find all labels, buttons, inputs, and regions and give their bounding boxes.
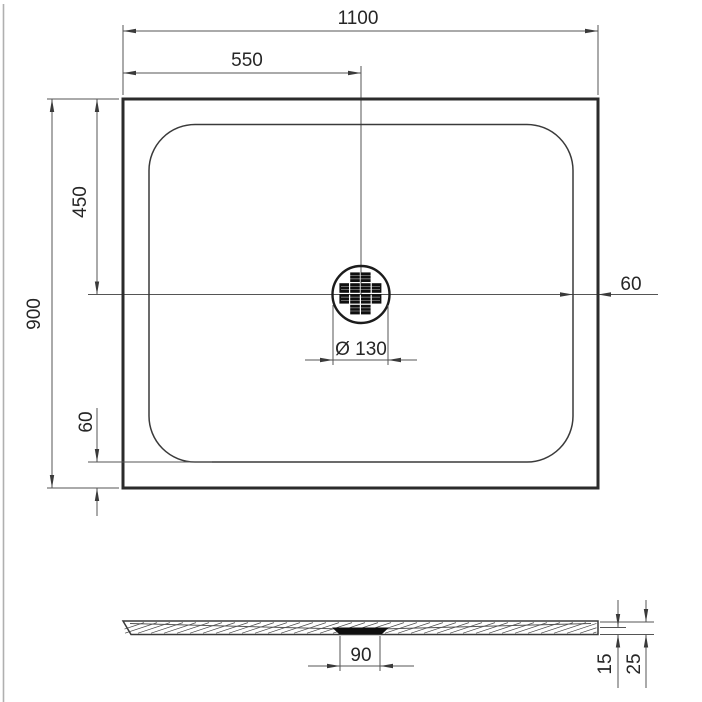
hatch-line: [190, 623, 222, 634]
arrow-left-icon: [123, 71, 136, 75]
dim-drain-width: 90: [308, 636, 414, 671]
basin-surface-line-left: [130, 624, 343, 630]
technical-drawing: 1100 550 900 450 60: [0, 0, 702, 702]
dim-half-depth: 450: [70, 99, 99, 295]
dim-overall-depth: 900: [24, 99, 119, 488]
dim-label-half-depth: 450: [70, 186, 91, 218]
arrow-right-icon: [585, 29, 598, 33]
arrow-left-icon: [123, 29, 136, 33]
arrow-up-icon: [616, 635, 620, 648]
arrow-up-icon: [95, 99, 99, 112]
arrow-left-icon: [380, 664, 393, 668]
dim-label-rim-height: 15: [595, 653, 616, 674]
dim-label-drain-width: 90: [350, 645, 371, 666]
arrow-right-icon: [560, 292, 573, 296]
arrow-down-icon: [95, 449, 99, 462]
arrow-right-icon: [348, 71, 361, 75]
hatch-line: [242, 623, 274, 634]
hatch-line: [489, 623, 521, 634]
arrow-down-icon: [644, 609, 648, 622]
top-view: 1100 550 900 450 60: [24, 8, 658, 516]
dim-half-width: 550: [123, 50, 361, 75]
arrow-right-icon: [327, 664, 340, 668]
hatch-line: [463, 623, 495, 634]
hatch-line: [502, 623, 534, 634]
hatch-line: [515, 623, 547, 634]
hatch-line: [450, 623, 482, 634]
drawing-canvas: 1100 550 900 450 60: [0, 0, 702, 702]
dim-rim-height: 15: [595, 600, 626, 688]
arrow-down-icon: [50, 475, 54, 488]
drain-grate: [339, 272, 381, 314]
arrow-down-icon: [616, 614, 620, 627]
dim-label-half-width: 550: [231, 50, 263, 71]
dim-rim-right: 60: [560, 274, 642, 297]
dim-label-rim-right: 60: [620, 274, 641, 295]
dim-label-overall-width: 1100: [338, 8, 379, 29]
side-view: 90 15 25: [123, 600, 654, 688]
arrow-up-icon: [95, 488, 99, 501]
dim-label-total-height: 25: [624, 653, 645, 674]
arrow-up-icon: [644, 635, 648, 648]
hatch-line: [476, 623, 508, 634]
hatch-line: [437, 623, 469, 634]
hatch-line: [567, 623, 597, 633]
drain: [333, 266, 390, 323]
hatch-line: [580, 628, 597, 633]
dim-rim-bottom: 60: [76, 408, 212, 516]
hatch-line: [177, 623, 209, 634]
dim-label-drain-diameter: Ø 130: [335, 339, 387, 360]
arrow-down-icon: [95, 282, 99, 295]
arrow-right-icon: [320, 358, 333, 362]
dim-label-overall-depth: 900: [24, 298, 45, 330]
arrow-up-icon: [50, 99, 54, 112]
hatch-line: [203, 623, 235, 634]
hatch-line: [216, 623, 248, 634]
hatch-line: [593, 632, 597, 633]
arrow-left-icon: [598, 292, 611, 296]
drain-recess-section: [332, 628, 389, 635]
hatch-line: [229, 623, 261, 634]
dim-label-rim-bottom: 60: [76, 411, 97, 432]
arrow-left-icon: [388, 358, 401, 362]
